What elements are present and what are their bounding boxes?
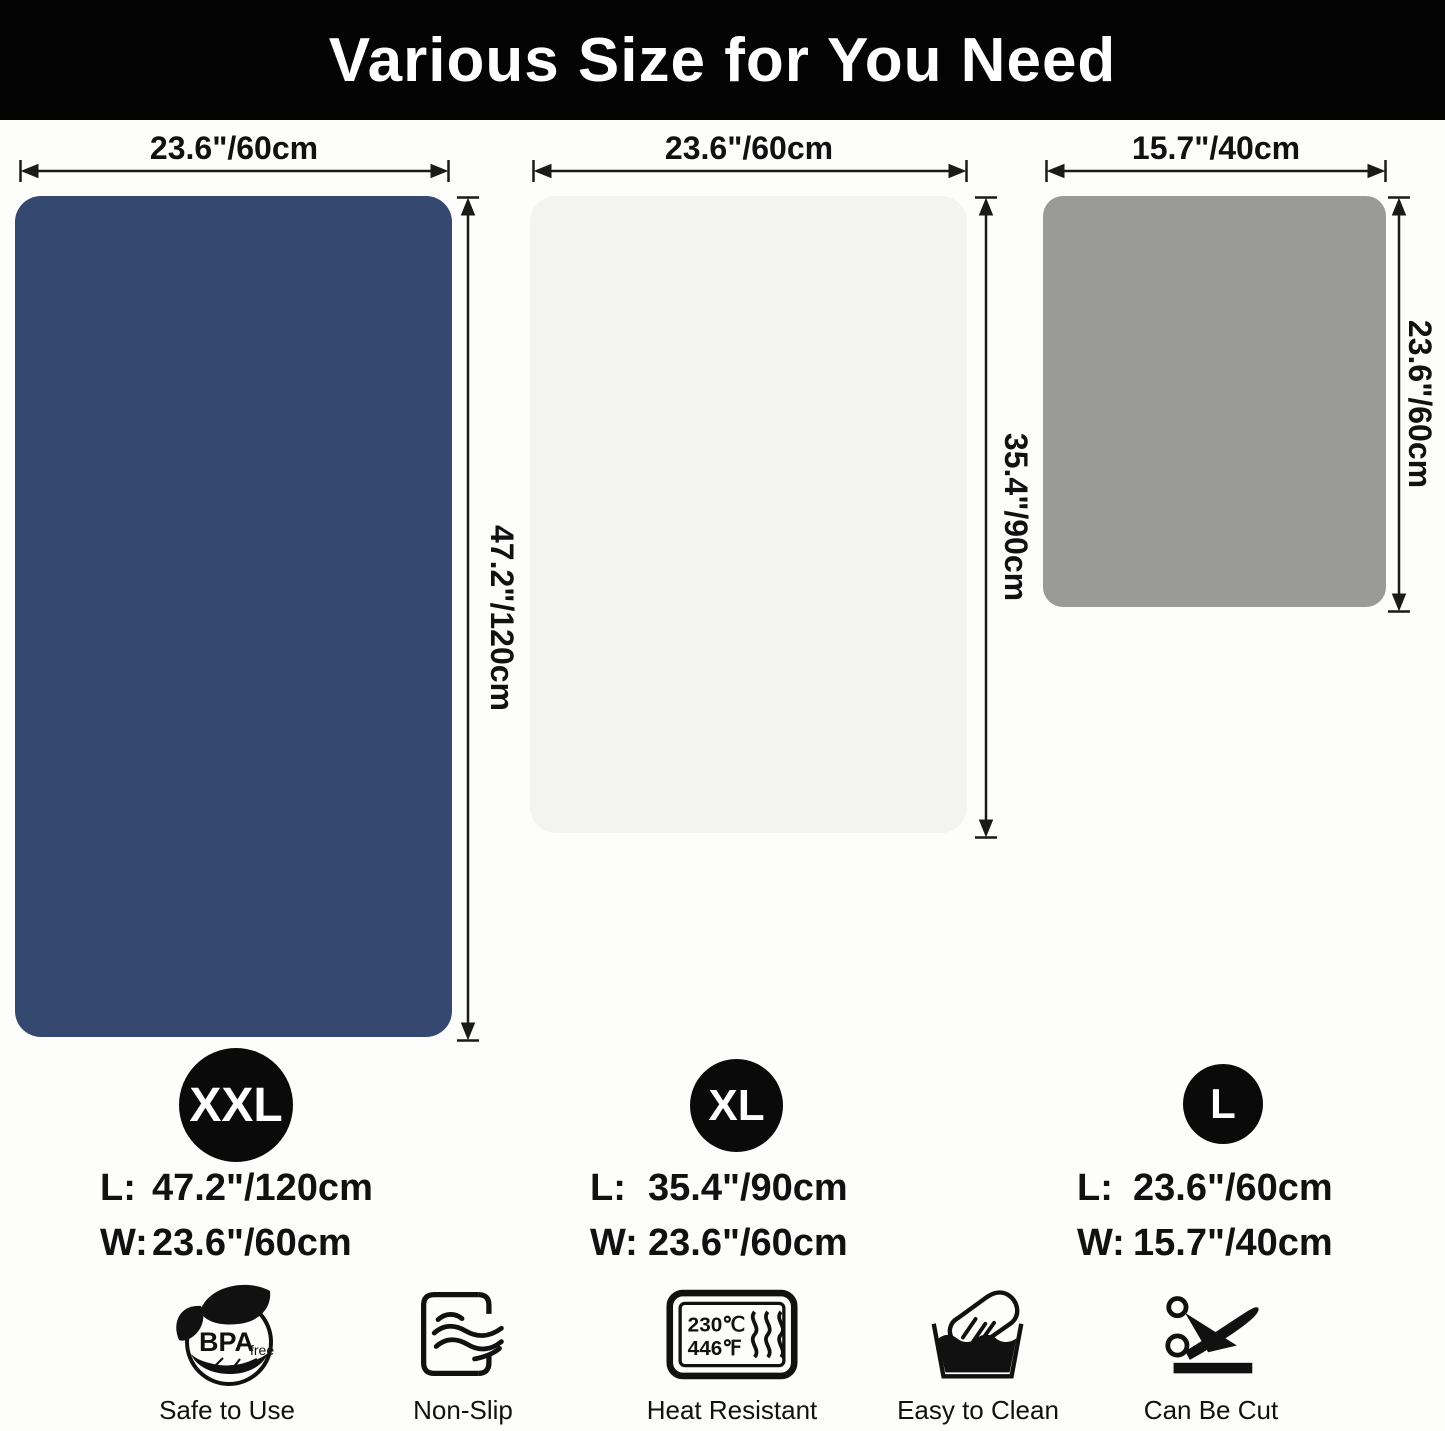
l-size-badge: L (1183, 1064, 1263, 1144)
spec-value: 23.6"/60cm (152, 1222, 373, 1265)
xl-height-arrow (975, 196, 997, 839)
bpa-free-icon: BPA free (166, 1276, 288, 1392)
l-spec-length: L: 23.6"/60cm (1077, 1167, 1333, 1210)
l-width-arrow (1045, 160, 1387, 182)
spec-value: 23.6"/60cm (648, 1222, 848, 1265)
spec-key: L: (100, 1167, 152, 1210)
spec-value: 15.7"/40cm (1133, 1222, 1333, 1265)
feature-can-be-cut: Can Be Cut (1101, 1276, 1321, 1428)
easy-to-clean-icon (922, 1276, 1034, 1392)
feature-caption: Non-Slip (413, 1395, 513, 1428)
xxl-height-arrow (457, 196, 479, 1042)
xl-specs: L: 35.4"/90cm W: 23.6"/60cm (590, 1167, 848, 1265)
xxl-size-badge: XXL (179, 1048, 293, 1162)
spec-value: 47.2"/120cm (152, 1167, 373, 1210)
xl-spec-width: W: 23.6"/60cm (590, 1222, 848, 1265)
xxl-specs: L: 47.2"/120cm W: 23.6"/60cm (100, 1167, 373, 1265)
xxl-spec-width: W: 23.6"/60cm (100, 1222, 373, 1265)
l-spec-width: W: 15.7"/40cm (1077, 1222, 1333, 1265)
page-title: Various Size for You Need (329, 25, 1117, 96)
spec-key: W: (100, 1222, 152, 1265)
mat-l (1043, 196, 1386, 607)
xl-size-badge: XL (690, 1059, 783, 1152)
spec-value: 35.4"/90cm (648, 1167, 848, 1210)
heat-resistant-icon: 230℃ 446℉ (666, 1276, 798, 1392)
spec-key: L: (590, 1167, 648, 1210)
size-infographic: Various Size for You Need 23.6"/60cm 47.… (0, 0, 1445, 1431)
bpa-free-text: free (250, 1342, 274, 1358)
mat-xl (530, 196, 967, 833)
can-be-cut-icon (1158, 1276, 1264, 1392)
feature-safe-to-use: BPA free Safe to Use (117, 1276, 337, 1428)
xl-spec-length: L: 35.4"/90cm (590, 1167, 848, 1210)
spec-key: W: (1077, 1222, 1133, 1265)
feature-easy-to-clean: Easy to Clean (868, 1276, 1088, 1428)
temp-celsius: 230℃ (688, 1313, 746, 1336)
spec-key: L: (1077, 1167, 1133, 1210)
feature-non-slip: Non-Slip (353, 1276, 573, 1428)
feature-caption: Safe to Use (159, 1395, 295, 1428)
feature-caption: Heat Resistant (647, 1395, 818, 1428)
xxl-spec-length: L: 47.2"/120cm (100, 1167, 373, 1210)
feature-caption: Can Be Cut (1144, 1395, 1278, 1428)
spec-key: W: (590, 1222, 648, 1265)
l-height-label: 23.6"/60cm (1401, 284, 1439, 524)
mat-xxl (15, 196, 452, 1037)
xxl-height-label: 47.2"/120cm (483, 498, 521, 738)
bpa-text: BPA (199, 1327, 254, 1357)
non-slip-icon (415, 1276, 511, 1392)
xl-height-label: 35.4"/90cm (997, 397, 1035, 637)
spec-value: 23.6"/60cm (1133, 1167, 1333, 1210)
temp-fahrenheit: 446℉ (688, 1337, 743, 1360)
xxl-width-arrow (19, 160, 450, 182)
header-banner: Various Size for You Need (0, 0, 1445, 120)
l-specs: L: 23.6"/60cm W: 15.7"/40cm (1077, 1167, 1333, 1265)
feature-heat-resistant: 230℃ 446℉ Heat Resistant (622, 1276, 842, 1428)
feature-caption: Easy to Clean (897, 1395, 1059, 1428)
xl-width-arrow (532, 160, 968, 182)
